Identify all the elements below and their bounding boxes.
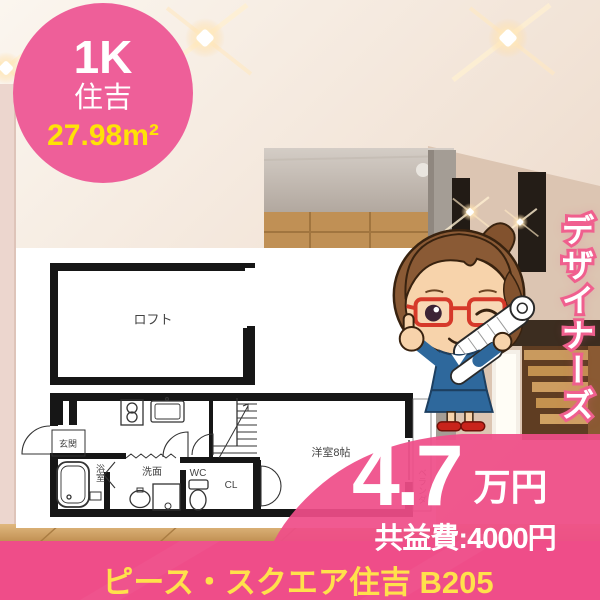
- common-fee: 共益費:4000円: [348, 515, 582, 557]
- rent-price: 4.7 万円: [352, 441, 548, 512]
- rent-unit: 万円: [474, 469, 548, 512]
- designers-vertical-banner: デザイナーズ: [559, 213, 592, 423]
- label-loft: ロフト: [133, 312, 172, 327]
- label-entrance: 玄関: [59, 438, 77, 449]
- listing-card: ロフト 玄関 浴室 洗面 WC CL 洋室8帖 ベランダ: [0, 0, 600, 600]
- location-name: 住吉: [74, 82, 132, 115]
- rent-value: 4.7: [352, 441, 460, 512]
- property-name: ピース・スクエア住吉 B205: [0, 557, 596, 600]
- agent-mascot-illustration: [378, 212, 546, 434]
- label-washstand: 洗面: [142, 466, 162, 478]
- label-closet: CL: [225, 480, 238, 491]
- label-toilet: WC: [190, 468, 207, 479]
- floor-area: 27.98m²: [47, 119, 159, 154]
- label-main-room: 洋室8帖: [311, 445, 350, 459]
- listing-badge: 1K 住吉 27.98m²: [13, 3, 193, 183]
- layout-type: 1K: [74, 33, 133, 81]
- label-bath: 浴室: [95, 464, 105, 482]
